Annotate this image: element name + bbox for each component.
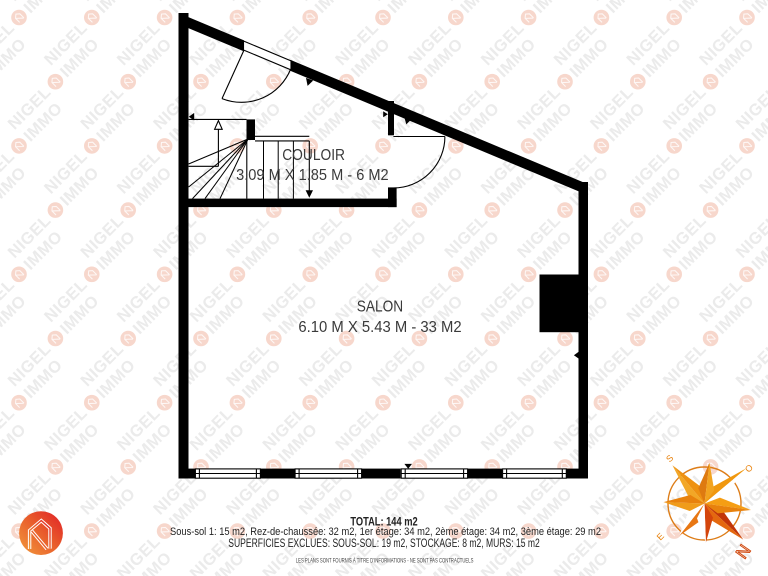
svg-text:SALON: SALON — [357, 299, 403, 316]
svg-text:3.09 M X 1.85 M - 6 M2: 3.09 M X 1.85 M - 6 M2 — [236, 167, 389, 184]
svg-text:COULOIR: COULOIR — [282, 147, 345, 164]
svg-text:6.10 M X 5.43 M - 33 M2: 6.10 M X 5.43 M - 33 M2 — [298, 319, 461, 336]
svg-text:SUPERFICIES EXCLUES: SOUS-SOL:: SUPERFICIES EXCLUES: SOUS-SOL: 19 m2, ST… — [228, 536, 540, 550]
svg-text:LES PLANS SONT FOURNIS À TITRE: LES PLANS SONT FOURNIS À TITRE D’INFORMA… — [296, 556, 474, 565]
